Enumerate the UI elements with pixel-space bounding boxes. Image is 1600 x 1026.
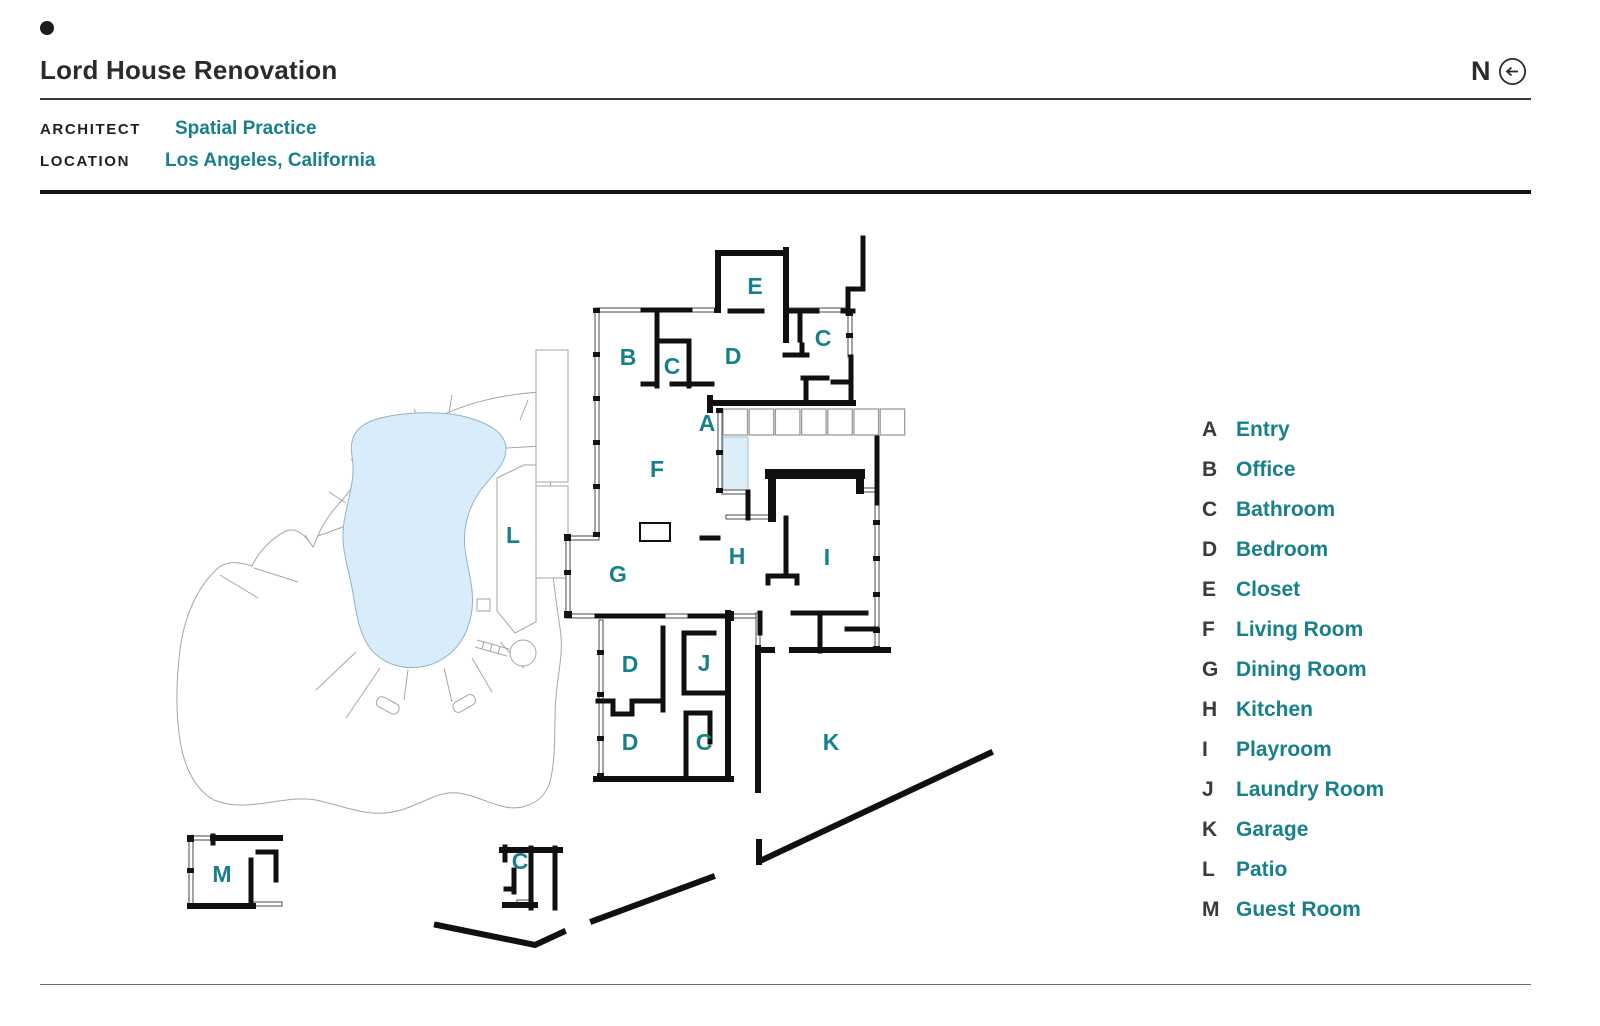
paver-square: [749, 409, 774, 435]
window-tick: [593, 532, 600, 537]
window-tick: [597, 736, 604, 741]
room-label-L: L: [506, 522, 520, 548]
window-tick: [846, 333, 853, 338]
stepping-stone: [451, 693, 477, 715]
paver-square: [775, 409, 800, 435]
window-tick: [873, 520, 880, 525]
room-label-M: M: [212, 861, 231, 887]
window-tick: [716, 408, 723, 413]
room-label-B: B: [620, 344, 637, 370]
entry-water-feature: [723, 437, 748, 492]
window-tick: [873, 556, 880, 561]
window-tick: [593, 484, 600, 489]
deck-panel: [536, 486, 568, 578]
pool-ladder: [477, 599, 490, 611]
window-tick: [873, 592, 880, 597]
paver-square: [723, 409, 748, 435]
room-label-G: G: [609, 561, 627, 587]
room-label-C: C: [815, 325, 832, 351]
window-tick: [593, 308, 600, 313]
room-label-H: H: [729, 543, 746, 569]
room-label-J: J: [698, 650, 711, 676]
deck-panel: [536, 350, 568, 482]
tree: [510, 640, 536, 666]
window-tick: [564, 570, 571, 575]
room-label-K: K: [823, 729, 840, 755]
walls: [187, 238, 990, 945]
window-tick: [716, 488, 723, 493]
stepping-stone: [375, 695, 401, 716]
room-label-D: D: [622, 651, 639, 677]
room-label-D: D: [725, 343, 742, 369]
room-label-D: D: [622, 729, 639, 755]
site-terrain: [177, 350, 568, 813]
room-label-E: E: [747, 273, 762, 299]
room-label-A: A: [699, 410, 716, 436]
pool: [343, 413, 506, 668]
window-tick: [593, 440, 600, 445]
room-label-F: F: [650, 456, 664, 482]
paver-square: [828, 409, 853, 435]
window-tick: [593, 352, 600, 357]
room-label-I: I: [824, 544, 830, 570]
window-tick: [597, 650, 604, 655]
room-label-C: C: [696, 729, 713, 755]
floor-plan: ABCDECFGHILDJDCKMC: [0, 0, 1600, 1026]
window-tick: [187, 868, 194, 873]
room-label-C: C: [664, 353, 681, 379]
paver-square: [802, 409, 827, 435]
window-tick: [716, 450, 723, 455]
fireplace: [640, 523, 670, 541]
entry-pavers: [723, 409, 905, 435]
patio-terrace: [497, 465, 536, 633]
window-tick: [597, 692, 604, 697]
window-tick: [593, 396, 600, 401]
paver-square: [880, 409, 905, 435]
room-label-C: C: [512, 848, 529, 874]
paver-square: [854, 409, 879, 435]
